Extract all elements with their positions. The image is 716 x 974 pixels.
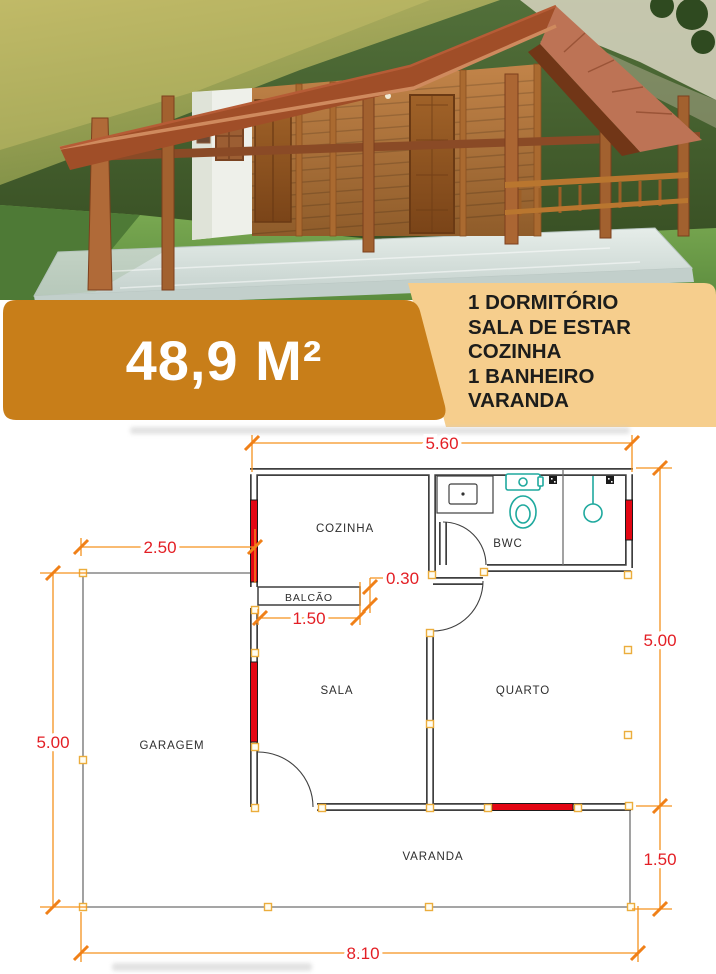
dimension-right-height: 5.00 [636, 461, 677, 813]
dim-value: 2.50 [143, 538, 176, 557]
window [492, 804, 573, 811]
dimension-garage-width: 2.50 [74, 529, 262, 583]
room-label-sala: SALA [320, 685, 353, 697]
sala-door [258, 752, 313, 807]
dim-value: 0.30 [386, 569, 419, 588]
feature-item: COZINHA [468, 340, 708, 365]
room-label-bwc: BWC [493, 538, 523, 550]
room-label-varanda: VARANDA [402, 851, 463, 863]
window [251, 662, 258, 742]
window [251, 500, 258, 582]
walls [250, 470, 633, 807]
shower-icon [584, 476, 602, 522]
room-label-balcao: BALCÃO [285, 591, 333, 604]
feature-item: 1 BANHEIRO [468, 365, 708, 390]
room-label-quarto: QUARTO [496, 685, 550, 697]
porch-post [363, 80, 374, 252]
dim-value: 5.00 [36, 733, 69, 752]
dimension-varanda-depth: 1.50 [632, 806, 677, 916]
area-label: 48,9 M² [3, 300, 445, 420]
feature-item: VARANDA [468, 389, 708, 414]
door-arcs [258, 522, 486, 807]
dim-value: 1.50 [643, 850, 676, 869]
features-list: 1 DORMITÓRIO SALA DE ESTAR COZINHA 1 BAN… [468, 291, 708, 414]
dim-value: 5.00 [643, 631, 676, 650]
dimension-left-height: 5.00 [36, 566, 87, 914]
quarto-door [433, 581, 483, 631]
room-label-cozinha: COZINHA [316, 523, 374, 535]
flyer-page: 48,9 M² 1 DORMITÓRIO SALA DE ESTAR COZIN… [0, 0, 716, 974]
dim-value: 5.60 [425, 434, 458, 453]
toilet-icon [506, 474, 543, 528]
porch-post [505, 74, 518, 244]
house-photo [0, 0, 716, 300]
feature-item: SALA DE ESTAR [468, 316, 708, 341]
bwc-door [443, 522, 486, 565]
dimension-total-width: 8.10 [74, 906, 645, 963]
feature-item: 1 DORMITÓRIO [468, 291, 708, 316]
floor-plan: 5.60 2.50 0.30 1.50 5.00 5.00 [0, 425, 716, 974]
dim-value: 8.10 [346, 944, 379, 963]
sink-icon [437, 476, 493, 513]
porch-post [678, 96, 689, 236]
dimension-top-width: 5.60 [245, 434, 639, 472]
dimension-counter-depth: 0.30 [363, 569, 419, 613]
drain-icon [549, 476, 614, 484]
room-label-garagem: GARAGEM [139, 740, 204, 752]
window [626, 500, 633, 540]
dim-value: 1.50 [292, 609, 325, 628]
